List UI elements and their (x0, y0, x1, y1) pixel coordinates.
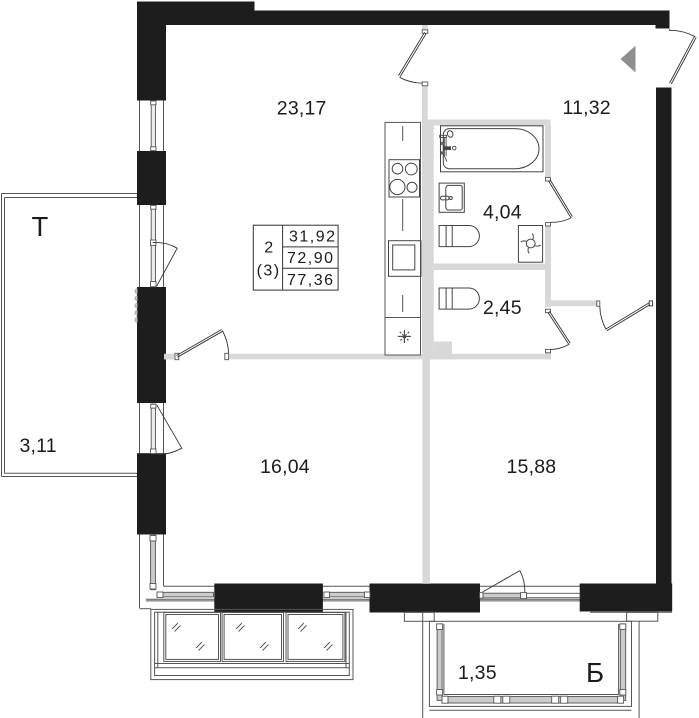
svg-text:31,92: 31,92 (289, 229, 337, 246)
svg-text:11,32: 11,32 (563, 97, 611, 119)
svg-text:4,04: 4,04 (483, 202, 522, 224)
svg-text:Б: Б (586, 657, 604, 688)
svg-text:2: 2 (264, 240, 274, 257)
svg-text:23,17: 23,17 (277, 97, 327, 119)
svg-text:3,11: 3,11 (20, 435, 57, 457)
svg-text:Т: Т (32, 211, 49, 242)
svg-text:(3): (3) (257, 262, 281, 279)
svg-text:16,04: 16,04 (260, 456, 310, 478)
svg-text:72,90: 72,90 (287, 250, 335, 267)
svg-text:1,35: 1,35 (458, 662, 497, 684)
svg-text:15,88: 15,88 (507, 456, 557, 478)
svg-text:2,45: 2,45 (483, 297, 522, 319)
svg-text:77,36: 77,36 (287, 272, 335, 289)
